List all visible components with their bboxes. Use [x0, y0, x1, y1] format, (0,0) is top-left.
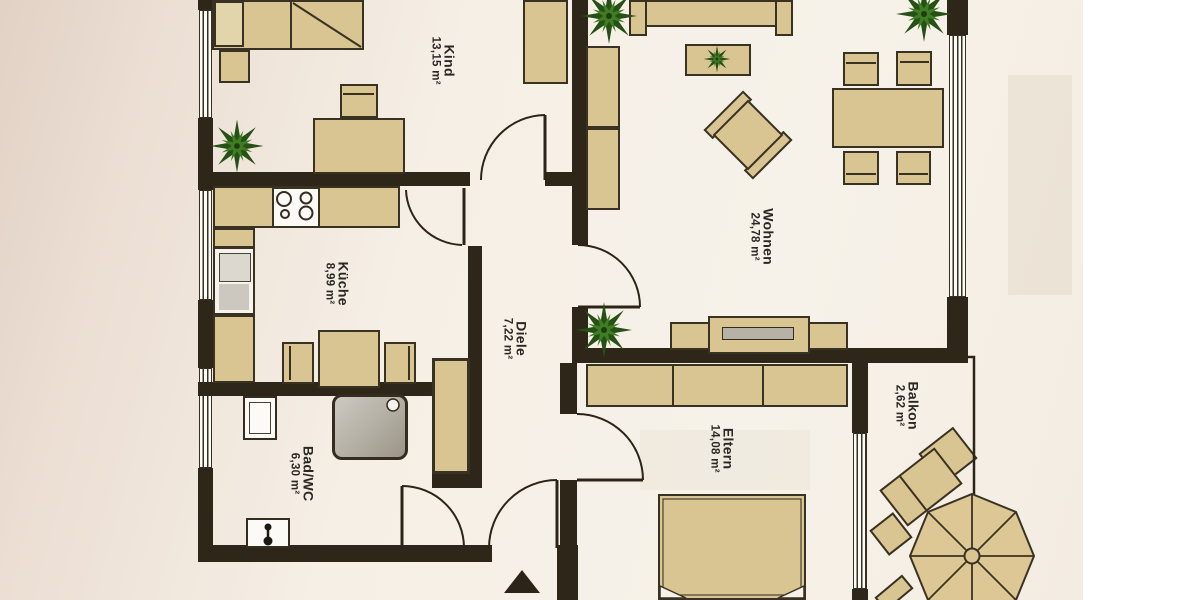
kitchen-chair-left	[282, 342, 314, 384]
kind-nightstand	[219, 50, 250, 83]
dining-chair-tr	[896, 51, 932, 86]
wall-wohnen-left-lower	[572, 307, 588, 348]
wall-kind-kueche	[198, 172, 470, 186]
room-label-wohnen: Wohnen 24,78 m²	[747, 192, 776, 282]
shower	[332, 394, 408, 460]
room-area: 6,30 m²	[287, 429, 300, 519]
room-name: Diele	[514, 294, 530, 384]
sideboard-left	[670, 322, 710, 350]
room-area: 24,78 m²	[747, 192, 760, 282]
kitchen-sink-basin	[219, 253, 251, 282]
kitchen-hob	[272, 187, 320, 228]
dining-table	[832, 88, 944, 148]
room-area: 7,22 m²	[500, 294, 513, 384]
window-kueche	[199, 190, 212, 300]
kitchen-counter-left2	[213, 315, 255, 383]
hall-wardrobe	[432, 358, 470, 474]
eltern-wardrobe-2	[672, 364, 766, 407]
wall-entrance-corner	[557, 545, 578, 600]
room-label-eltern: Eltern 14,08 m²	[707, 404, 736, 494]
wall-diele-eltern-upper	[560, 363, 577, 414]
kitchen-table	[318, 330, 380, 388]
sideboard-tv-slot	[722, 327, 794, 340]
room-label-diele: Diele 7,22 m²	[500, 294, 529, 384]
sideboard-right	[808, 322, 848, 350]
wall-diele-eltern-lower	[560, 480, 577, 548]
room-name: Kind	[442, 16, 458, 106]
wall-left-top	[198, 0, 213, 10]
washbasin-inner	[249, 402, 271, 434]
kind-desk-chair	[340, 84, 378, 118]
sofa-armrest-left	[629, 0, 647, 36]
floorplan-photo: Kind 13,15 m² Küche 8,99 m² Diele 7,22 m…	[0, 0, 1200, 600]
kind-bed-pillow	[214, 1, 244, 47]
wall-right-cap	[947, 0, 968, 35]
eltern-bed	[658, 494, 806, 600]
shelf-upper	[586, 46, 620, 128]
eltern-wardrobe-3	[762, 364, 848, 407]
coffee-table	[685, 44, 751, 76]
sofa-seat	[634, 0, 793, 27]
dining-chair-br	[896, 151, 931, 185]
room-label-kind: Kind 13,15 m²	[428, 16, 457, 106]
room-area: 2,62 m²	[892, 361, 905, 451]
room-name: Eltern	[721, 404, 737, 494]
room-area: 13,15 m²	[428, 16, 441, 106]
room-label-bad: Bad/WC 6,30 m²	[287, 429, 316, 519]
shelf-lower	[586, 128, 620, 210]
window-eltern	[853, 433, 867, 589]
kitchen-sink-drainer	[219, 284, 249, 310]
washbasin	[243, 396, 277, 440]
dining-chair-bl	[843, 151, 879, 185]
sofa-armrest-right	[775, 0, 793, 36]
room-name: Wohnen	[761, 192, 777, 282]
kind-desk	[313, 118, 405, 174]
eltern-wardrobe-1	[586, 364, 676, 407]
wall-wardrobe-stub	[432, 474, 482, 488]
dining-chair-tl	[843, 52, 879, 86]
room-area: 14,08 m²	[707, 404, 720, 494]
wall-right-lower	[947, 297, 968, 363]
kitchen-chair-right	[384, 342, 416, 384]
room-name: Balkon	[906, 361, 922, 451]
wall-eltern-right-bottom	[852, 589, 868, 600]
wall-kueche-diele	[468, 246, 482, 488]
window-wohnen	[949, 35, 966, 297]
balcony-lounge-backrest-line	[899, 476, 926, 510]
wall-bottom	[198, 545, 492, 562]
room-name: Bad/WC	[301, 429, 317, 519]
toilet	[246, 518, 290, 548]
room-name: Küche	[336, 239, 352, 329]
room-label-balkon: Balkon 2,62 m²	[892, 361, 921, 451]
room-area: 8,99 m²	[322, 239, 335, 329]
kitchen-sink-unit	[213, 247, 255, 315]
window-kind	[199, 10, 212, 118]
wall-left-mid2	[198, 300, 213, 368]
wall-eltern-right-top	[852, 363, 868, 433]
kind-wardrobe	[523, 0, 568, 84]
kitchen-counter-left1	[213, 228, 255, 248]
room-label-kueche: Küche 8,99 m²	[322, 239, 351, 329]
